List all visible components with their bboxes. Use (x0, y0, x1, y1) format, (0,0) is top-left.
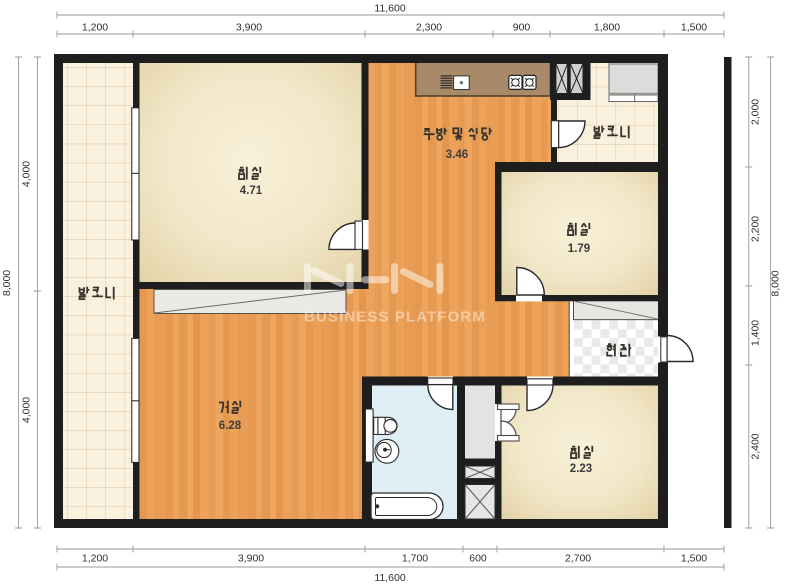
svg-text:600: 600 (469, 553, 487, 565)
svg-text:8,000: 8,000 (1, 270, 13, 296)
svg-text:1,500: 1,500 (681, 22, 707, 34)
svg-text:4,000: 4,000 (21, 161, 33, 187)
svg-text:1,800: 1,800 (594, 22, 620, 34)
svg-text:2,200: 2,200 (750, 216, 762, 242)
svg-text:2,300: 2,300 (416, 22, 442, 34)
svg-text:4,000: 4,000 (21, 397, 33, 423)
svg-text:8,000: 8,000 (770, 270, 782, 296)
svg-text:1,500: 1,500 (681, 553, 707, 565)
svg-text:BUSINESS PLATFORM: BUSINESS PLATFORM (304, 309, 486, 326)
svg-text:1,200: 1,200 (82, 22, 108, 34)
svg-text:2.23: 2.23 (570, 463, 592, 475)
svg-text:1.79: 1.79 (568, 243, 590, 255)
svg-text:2,700: 2,700 (565, 553, 591, 565)
svg-text:3,900: 3,900 (236, 22, 262, 34)
svg-text:1,700: 1,700 (402, 553, 428, 565)
svg-text:4.71: 4.71 (240, 185, 263, 197)
svg-text:2,400: 2,400 (750, 433, 762, 459)
svg-text:3.46: 3.46 (446, 149, 468, 161)
svg-text:11,600: 11,600 (374, 3, 405, 15)
svg-text:2,000: 2,000 (750, 99, 762, 125)
svg-text:1,200: 1,200 (82, 553, 108, 565)
svg-text:1,400: 1,400 (750, 320, 762, 346)
svg-text:3,900: 3,900 (238, 553, 264, 565)
svg-text:11,600: 11,600 (374, 572, 405, 584)
svg-text:900: 900 (513, 22, 531, 34)
svg-text:6.28: 6.28 (219, 420, 242, 432)
